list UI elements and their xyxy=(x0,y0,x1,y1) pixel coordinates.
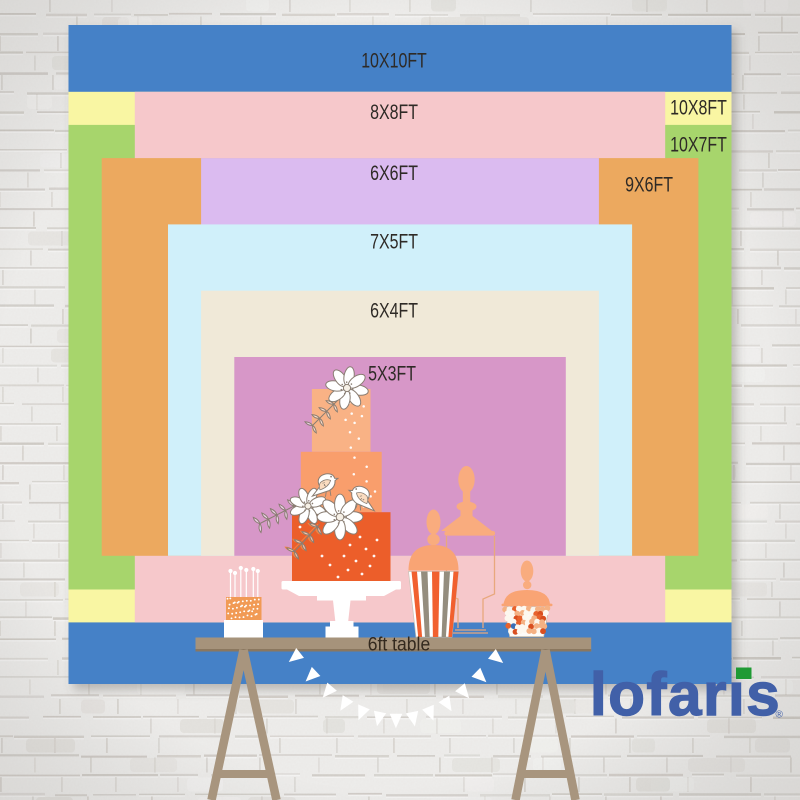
svg-text:10X8FT: 10X8FT xyxy=(670,95,727,119)
svg-text:6X6FT: 6X6FT xyxy=(370,161,418,185)
svg-text:lofarıs: lofarıs xyxy=(590,661,781,728)
svg-text:6ft table: 6ft table xyxy=(368,633,430,655)
svg-text:5X3FT: 5X3FT xyxy=(368,361,416,385)
svg-text:10X10FT: 10X10FT xyxy=(361,48,427,72)
svg-text:®: ® xyxy=(776,710,784,721)
svg-text:8X8FT: 8X8FT xyxy=(370,100,418,124)
svg-text:6X4FT: 6X4FT xyxy=(370,298,418,322)
svg-text:9X6FT: 9X6FT xyxy=(625,172,673,196)
svg-text:10X7FT: 10X7FT xyxy=(670,132,727,156)
svg-text:7X5FT: 7X5FT xyxy=(370,229,418,253)
